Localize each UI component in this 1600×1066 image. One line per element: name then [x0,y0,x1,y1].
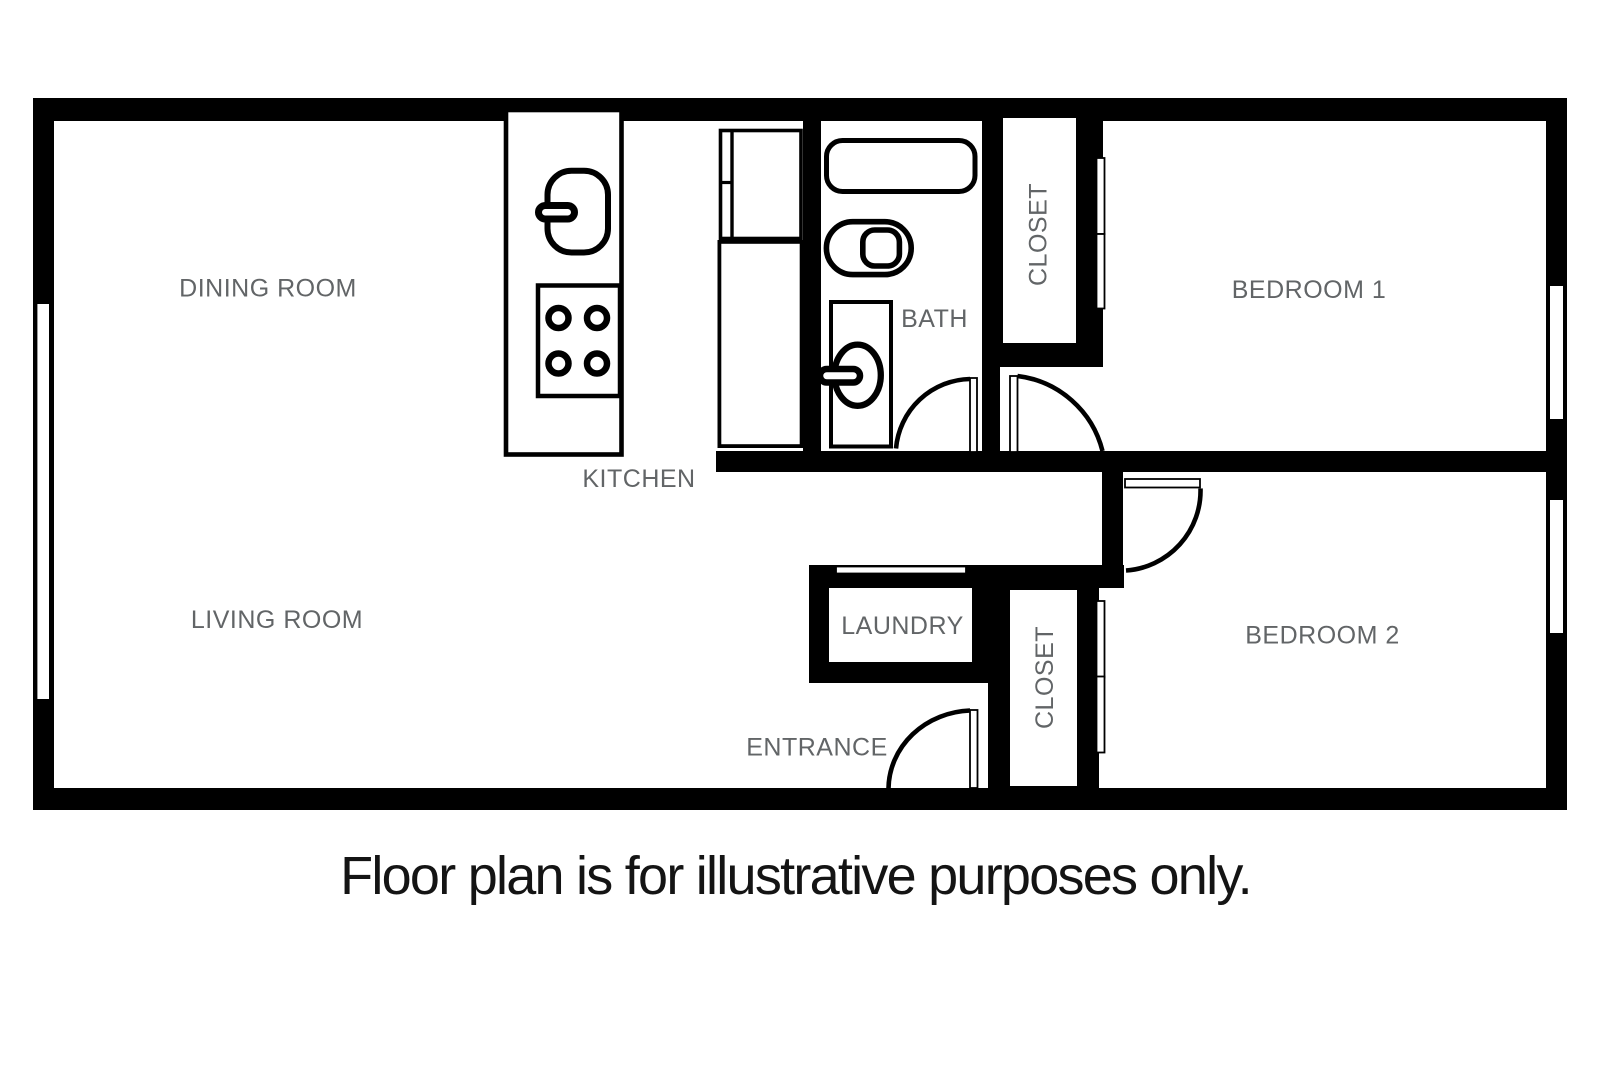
svg-text:BEDROOM 2: BEDROOM 2 [1245,622,1400,650]
svg-text:KITCHEN: KITCHEN [582,465,695,493]
svg-text:CLOSET: CLOSET [1024,183,1052,286]
svg-text:LAUNDRY: LAUNDRY [841,612,964,640]
svg-text:BEDROOM 1: BEDROOM 1 [1232,276,1387,304]
svg-text:DINING ROOM: DINING ROOM [179,275,357,303]
svg-text:CLOSET: CLOSET [1031,626,1059,729]
svg-text:BATH: BATH [901,305,968,333]
svg-text:Floor plan is for illustrative: Floor plan is for illustrative purposes … [340,846,1251,906]
svg-text:LIVING ROOM: LIVING ROOM [191,606,363,634]
svg-text:ENTRANCE: ENTRANCE [746,734,888,762]
